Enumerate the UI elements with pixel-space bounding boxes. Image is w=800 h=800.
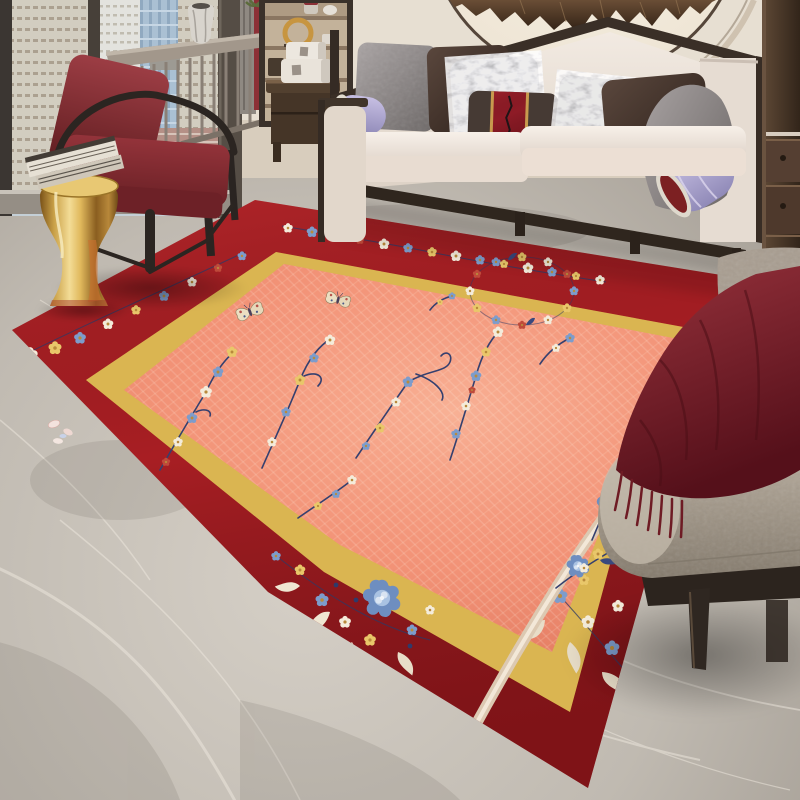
vase [188,3,214,44]
side-cabinet [762,0,800,272]
scene-canvas [0,0,800,800]
white-gift-boxes [281,42,331,83]
sofa-left-arm [324,106,366,242]
living-room-photo [0,0,800,800]
